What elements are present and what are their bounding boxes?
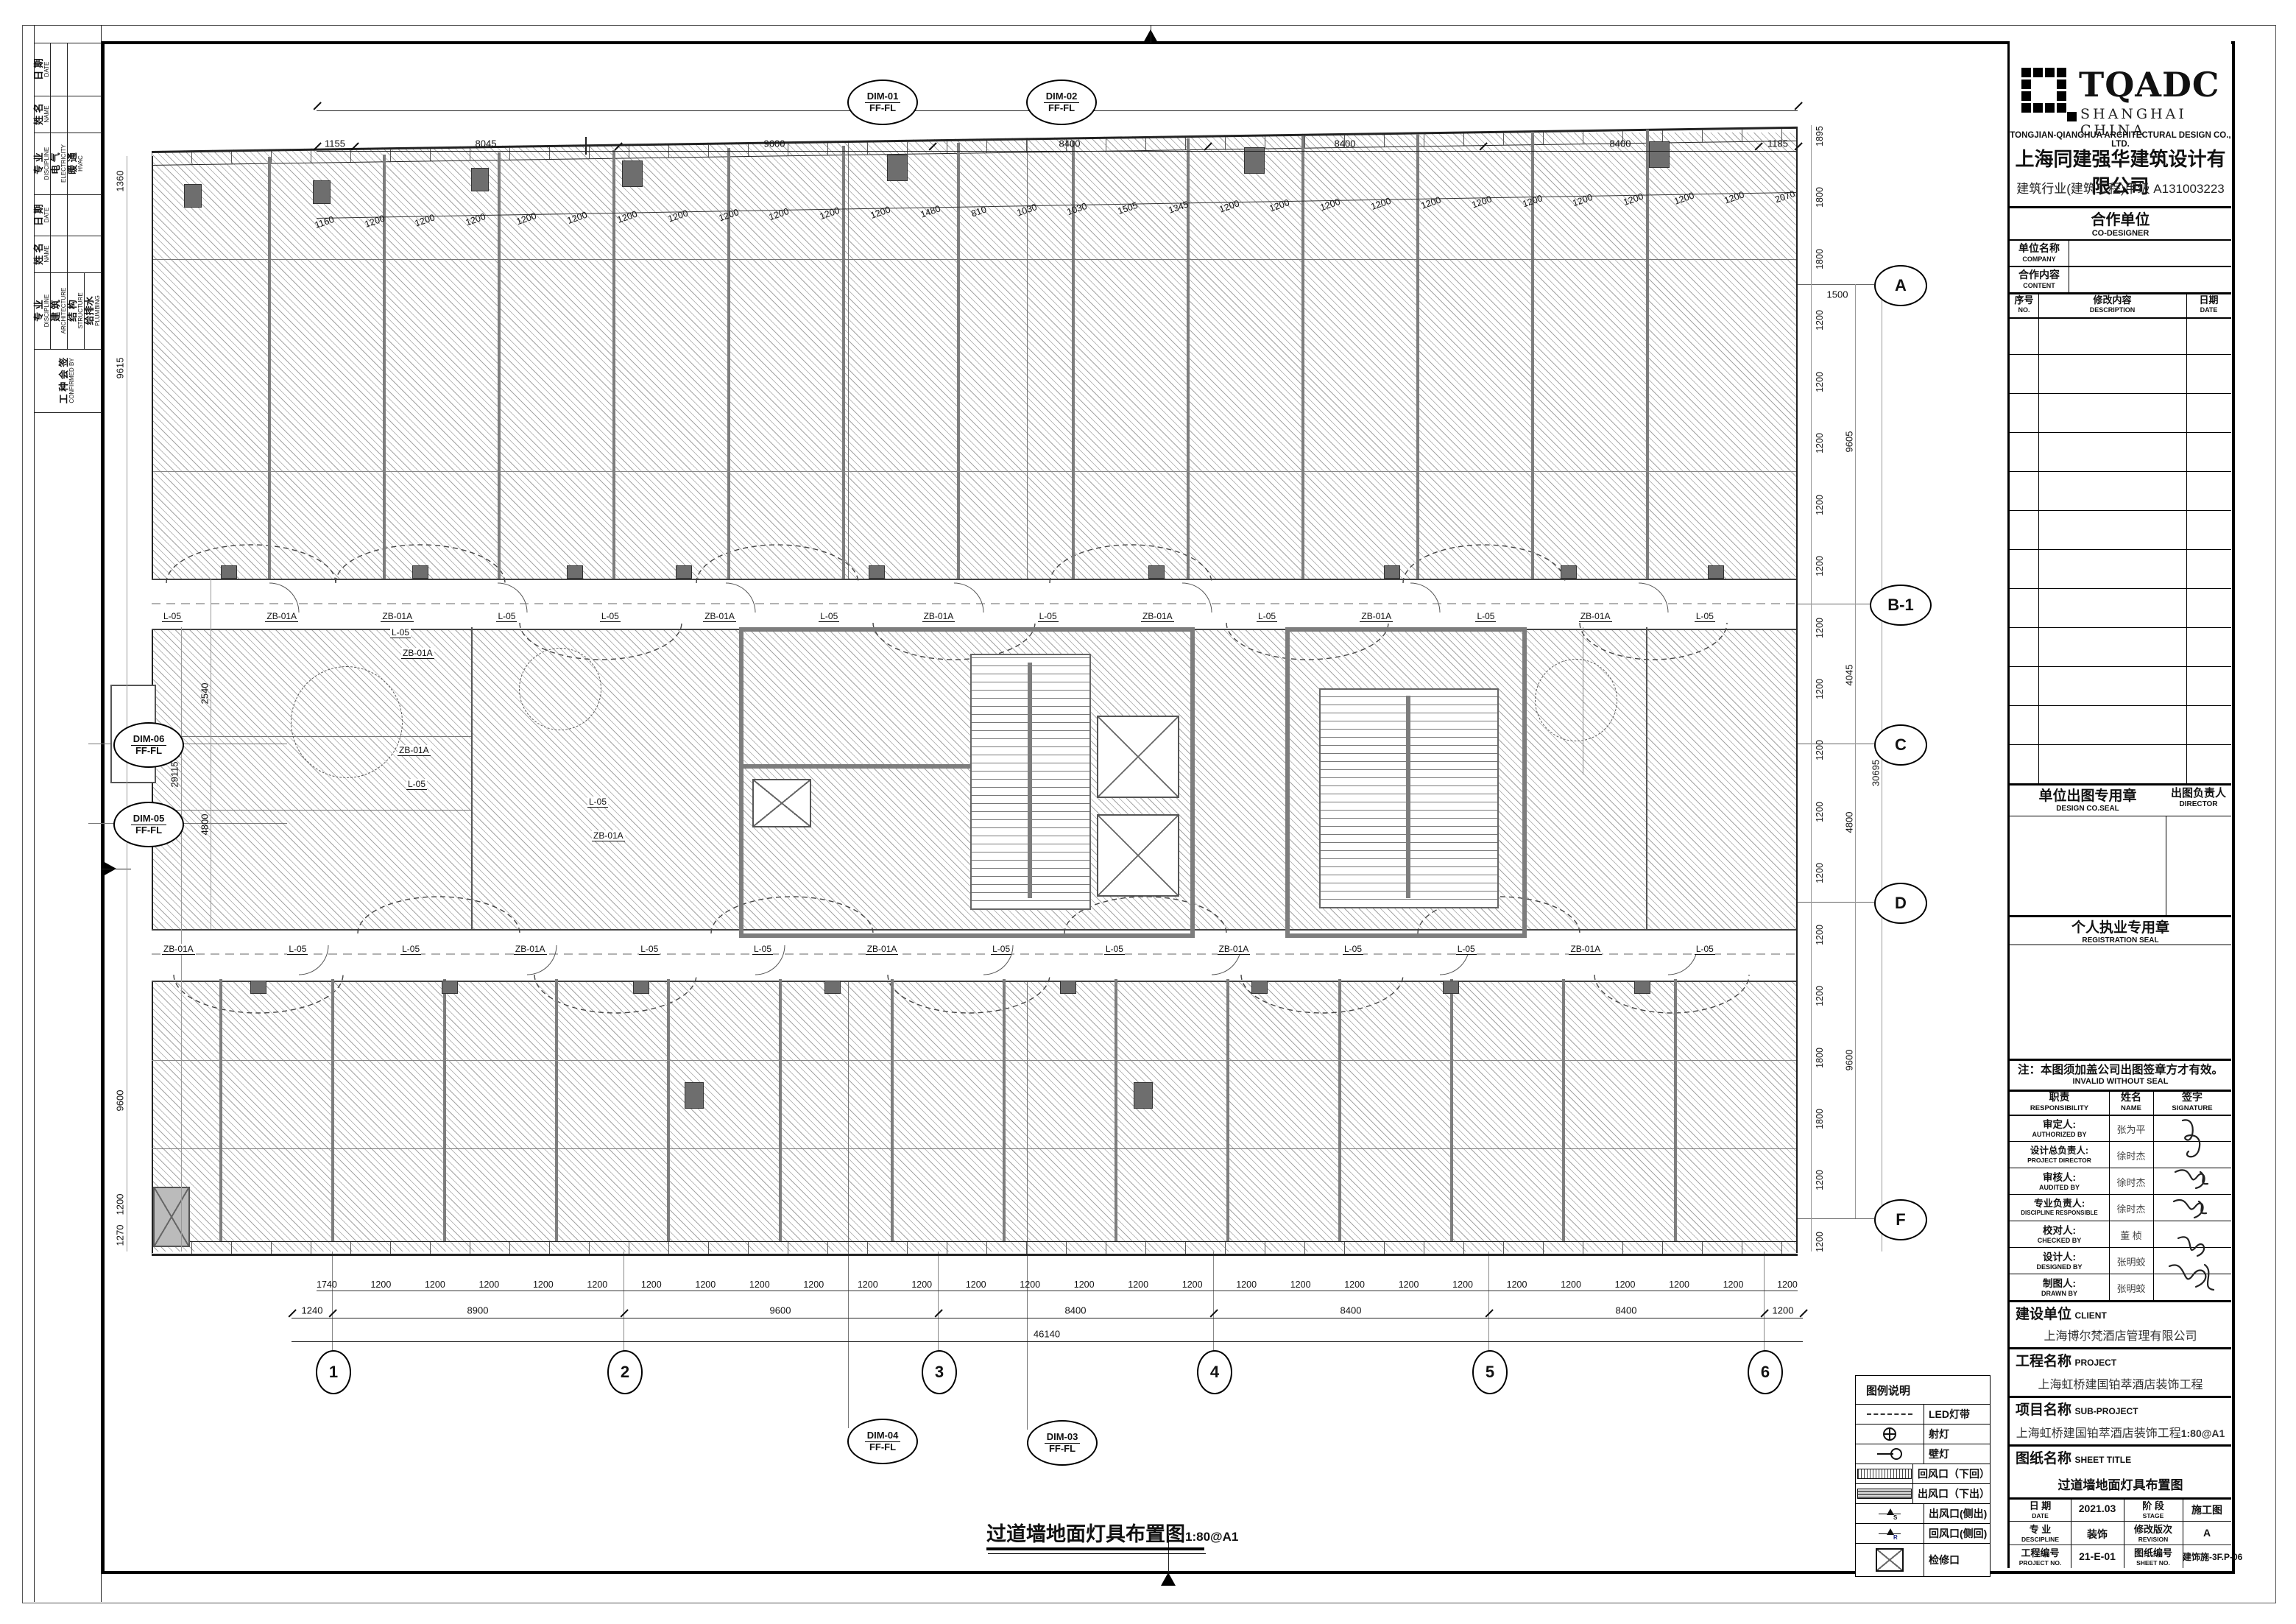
fixture-label: ZB-01A — [398, 745, 431, 756]
fixture-label: L-05 — [1475, 611, 1496, 622]
dim-right-overall: 30695 — [1871, 760, 1882, 786]
signatures — [2153, 1115, 2231, 1300]
bottom-room-band — [152, 979, 1796, 1251]
strip-hvac: 暖 通HVAC — [68, 152, 84, 174]
subproject-overlap: 1:80@A1 — [2181, 1427, 2225, 1439]
dim-segment: 1155 — [325, 138, 345, 149]
legend-title: 图例说明 — [1856, 1383, 1990, 1398]
legend-label: 出风口（下出） — [1913, 1486, 1990, 1501]
fixture-label: L-05 — [991, 944, 1011, 955]
spotlight-icon — [1883, 1427, 1896, 1441]
shaft — [153, 1187, 190, 1247]
grid-bubble-F: F — [1874, 1199, 1927, 1240]
footer-projno-cn: 工程编号 — [2010, 1545, 2071, 1559]
logo-section: TQADC SHANGHAI CHINA TONGJIAN-QIANGHUA A… — [2010, 41, 2231, 208]
registration-seal-cn: 个人执业专用章 — [2010, 917, 2231, 936]
legend-label: 壁灯 — [1924, 1447, 1990, 1461]
dim-left: 29115 — [169, 761, 180, 787]
upper-corridor-labels: L-05ZB-01AZB-01AL-05L-05ZB-01AL-05ZB-01A… — [162, 611, 1715, 622]
grid-bubble-6: 6 — [1748, 1350, 1783, 1394]
strip-plumbing: 给排水PLUMBING — [85, 295, 101, 326]
grid-bubble-C: C — [1874, 724, 1927, 766]
callout-dim-03: DIM-03FF-FL — [1027, 1420, 1098, 1466]
project-value: 上海虹桥建国铂萃酒店装饰工程 — [2010, 1374, 2231, 1392]
project-label-en: PROJECT — [2074, 1358, 2116, 1368]
footer-rev-cn: 修改版次 — [2124, 1522, 2183, 1536]
rev-desc-en: DESCRIPTION — [2038, 306, 2186, 314]
content-label-cn: 合作内容 — [2010, 267, 2069, 282]
strip-date-1: 日 期DATE — [34, 58, 50, 80]
resp-sig-header-cn: 签字 — [2153, 1090, 2231, 1104]
design-seal-en: DESIGN CO.SEAL — [2010, 805, 2166, 813]
dim-left: 2540 — [199, 683, 211, 705]
supply-grille-down-icon — [1857, 1489, 1912, 1499]
footer-stage-val: 施工图 — [2183, 1503, 2231, 1517]
dim-left: 1270 — [115, 1225, 126, 1246]
elevator-shaft — [1097, 814, 1179, 897]
subproject-label-cn: 项目名称 — [2016, 1402, 2071, 1418]
subproject-label-en: SUB-PROJECT — [2074, 1406, 2138, 1416]
fixture-label: L-05 — [1257, 611, 1277, 622]
responsibility-rows: 审定人: AUTHORIZED BY 张为平 设计总负责人: PROJECT D… — [2010, 1115, 2231, 1302]
callout-dim-06: DIM-06FF-FL — [113, 722, 184, 768]
resp-sig-header-en: SIGNATURE — [2153, 1104, 2231, 1112]
fixture-label: ZB-01A — [703, 611, 736, 622]
dim-right-ticks: 1895180018001200120012001200120012001200… — [1812, 131, 1827, 1247]
footer-rev-val: A — [2183, 1527, 2231, 1539]
fixture-label: L-05 — [819, 611, 839, 622]
title-block: TQADC SHANGHAI CHINA TONGJIAN-QIANGHUA A… — [2007, 41, 2231, 1568]
grid-bubble-2: 2 — [607, 1350, 643, 1394]
footer-stage-cn: 阶 段 — [2124, 1498, 2183, 1512]
drawing-title: 过道墙地面灯具布置图1:80@A1 — [986, 1518, 1222, 1547]
resp-role-header-en: RESPONSIBILITY — [2010, 1104, 2109, 1112]
legend-label: 回风口（下回） — [1913, 1466, 1990, 1481]
fixture-label: L-05 — [1343, 944, 1363, 955]
fixture-label: ZB-01A — [514, 944, 547, 955]
resp-name-header-cn: 姓名 — [2109, 1090, 2153, 1104]
dim-segment: 8400 — [1616, 1305, 1637, 1316]
dim-segment: 8045 — [476, 138, 497, 149]
fixture-label: ZB-01A — [922, 611, 956, 622]
dim-segment: 9600 — [770, 1305, 791, 1316]
content-label-en: CONTENT — [2010, 282, 2069, 289]
dim-left: 4800 — [199, 814, 211, 836]
center-mark-bottom-icon — [1161, 1572, 1176, 1586]
callout-dim-01: DIM-01FF-FL — [847, 80, 918, 125]
callout-dim-04: DIM-04FF-FL — [847, 1419, 918, 1464]
fixture-label: L-05 — [406, 779, 427, 790]
dim-segment: 8400 — [1065, 1305, 1087, 1316]
fixture-label: ZB-01A — [265, 611, 298, 622]
strip-name-2: 姓 名NAME — [34, 243, 50, 265]
shaft — [752, 779, 811, 827]
fixture-label: ZB-01A — [401, 648, 434, 659]
fixture-label: ZB-01A — [1141, 611, 1174, 622]
dim-segment: 1240 — [302, 1305, 323, 1316]
legend-label: 检修口 — [1924, 1553, 1990, 1567]
resp-role-header-cn: 职责 — [2010, 1090, 2109, 1104]
legend: 图例说明 LED灯带 射灯 壁灯 回风口（下回） 出风口（下出） — [1855, 1375, 1991, 1577]
dim-segment: 8400 — [1059, 138, 1081, 149]
fixture-label: L-05 — [1695, 611, 1715, 622]
resp-name: 张为平 — [2109, 1122, 2153, 1136]
tqadc-logo-icon — [2021, 68, 2067, 113]
fixture-label: L-05 — [600, 611, 621, 622]
led-strip-icon — [1867, 1413, 1912, 1415]
client-label-en: CLIENT — [2074, 1310, 2106, 1321]
project-label-cn: 工程名称 — [2016, 1354, 2071, 1369]
sheettitle-value: 过道墙地面灯具布置图 — [2010, 1475, 2231, 1493]
dim-right: 4800 — [1844, 812, 1855, 833]
legend-label: 射灯 — [1924, 1427, 1990, 1441]
dim-right: 9605 — [1844, 431, 1855, 453]
logo-acronym: TQADC — [2079, 65, 2220, 105]
footer-sheetno-val: 建饰施-3F.P-06 — [2183, 1550, 2231, 1563]
rev-desc-cn: 修改内容 — [2038, 292, 2186, 306]
access-panel-icon — [1876, 1548, 1904, 1572]
co-designer-en: CO-DESIGNER — [2010, 229, 2231, 238]
dim-segment: 8400 — [1610, 138, 1631, 149]
fixture-label: ZB-01A — [1360, 611, 1393, 622]
callout-dim-02: DIM-02FF-FL — [1026, 80, 1097, 125]
strip-name-1: 姓 名NAME — [34, 103, 50, 125]
dim-left: 1200 — [115, 1194, 126, 1215]
grid-bubble-1: 1 — [316, 1350, 351, 1394]
design-seal-area — [2010, 816, 2231, 917]
strip-discipline-2: 专 业DISCIPLINE — [34, 294, 50, 327]
dim-left: 9615 — [115, 358, 126, 379]
note-en: INVALID WITHOUT SEAL — [2010, 1077, 2231, 1086]
drawing-sheet: 日 期DATE 姓 名NAME 专 业DISCIPLINE 电 气ELECTRI… — [0, 0, 2296, 1624]
fixture-label: L-05 — [496, 611, 517, 622]
fixture-label: L-05 — [639, 944, 660, 955]
footer-sheetno-cn: 图纸编号 — [2124, 1545, 2183, 1559]
strip-electricity: 电 气ELECTRICITY — [51, 144, 67, 183]
fixture-label: L-05 — [390, 627, 411, 638]
sheettitle-label-en: SHEET TITLE — [2074, 1455, 2131, 1465]
grid-bubble-B1: B-1 — [1870, 585, 1932, 626]
footer-disc-cn: 专 业 — [2010, 1522, 2071, 1536]
grid-bubble-4: 4 — [1197, 1350, 1232, 1394]
strip-title: 工 种 会 签CONFIRMED BY — [59, 358, 75, 404]
director-en: DIRECTOR — [2166, 800, 2231, 808]
rev-no-en: NO. — [2010, 306, 2038, 314]
grid-bubble-D: D — [1874, 883, 1927, 924]
dim-left: 9600 — [115, 1090, 126, 1112]
fixture-label: ZB-01A — [162, 944, 195, 955]
design-seal-cn: 单位出图专用章 — [2010, 785, 2166, 805]
registration-seal-en: REGISTRATION SEAL — [2010, 936, 2231, 945]
fixture-label: L-05 — [1456, 944, 1477, 955]
dim-right-small: 1500 — [1827, 289, 1848, 300]
company-label-cn: 单位名称 — [2010, 241, 2069, 255]
subproject-value: 上海虹桥建国铂萃酒店装饰工程 — [2016, 1427, 2181, 1440]
footer-date-val: 2021.03 — [2071, 1503, 2124, 1514]
fixture-label: L-05 — [1695, 944, 1715, 955]
footer-grid: 日 期 DATE 2021.03 阶 段 STAGE 施工图 专 业 DESCI… — [2010, 1497, 2231, 1568]
footer-disc-val: 装饰 — [2071, 1527, 2124, 1542]
dim-bottom-detail: 1740120012001200120012001200120012001200… — [317, 1279, 1798, 1291]
grid-bubble-A: A — [1874, 265, 1927, 306]
client-value: 上海博尔梵酒店管理有限公司 — [2010, 1326, 2231, 1344]
return-grille-side-icon: R — [1879, 1533, 1901, 1534]
strip-date-2: 日 期DATE — [34, 204, 50, 226]
lower-corridor-labels: ZB-01AL-05L-05ZB-01AL-05L-05ZB-01AL-05L-… — [162, 944, 1715, 955]
sheettitle-label-cn: 图纸名称 — [2016, 1451, 2071, 1466]
legend-label: 回风口(侧回) — [1924, 1526, 1990, 1541]
strip-architecture: 建 筑ARCHITECTURE — [51, 288, 67, 334]
dim-segment: 8400 — [1335, 138, 1356, 149]
dim-bottom-overall: 46140 — [1034, 1329, 1060, 1340]
company-label-en: COMPANY — [2010, 255, 2069, 263]
co-designer-cn: 合作单位 — [2010, 208, 2231, 229]
legend-label: 出风口(侧出) — [1924, 1506, 1990, 1521]
grid-bubble-5: 5 — [1472, 1350, 1508, 1394]
rev-date-en: DATE — [2186, 306, 2231, 314]
rev-date-cn: 日期 — [2186, 292, 2231, 306]
fixture-label: L-05 — [1104, 944, 1125, 955]
registration-seal-area — [2010, 945, 2231, 1061]
fixture-label: L-05 — [587, 797, 608, 808]
fixture-label: ZB-01A — [1218, 944, 1251, 955]
dim-segment: 8900 — [467, 1305, 489, 1316]
strip-structure: 结 构STRUCTURE — [68, 292, 84, 328]
dim-left: 1360 — [115, 171, 126, 192]
callout-dim-05: DIM-05FF-FL — [113, 802, 184, 847]
dim-segment: 1200 — [1773, 1305, 1794, 1316]
legend-label: LED灯带 — [1924, 1407, 1990, 1422]
dim-segment: 9600 — [764, 138, 785, 149]
dim-right: 4045 — [1844, 665, 1855, 686]
fixture-label: L-05 — [1038, 611, 1059, 622]
fixture-label: ZB-01A — [1569, 944, 1602, 955]
note-cn: 注：本图须加盖公司出图签章方才有效。 — [2010, 1061, 2231, 1077]
supply-grille-side-icon: S — [1879, 1514, 1901, 1514]
elevator-shaft — [1097, 716, 1179, 798]
footer-projno-val: 21-E-01 — [2071, 1550, 2124, 1562]
fixture-label: L-05 — [752, 944, 773, 955]
logo-qualification: 建筑行业(建筑工程)甲级 A131003223 — [2010, 178, 2231, 197]
fixture-label: L-05 — [400, 944, 421, 955]
resp-name-header-en: NAME — [2109, 1104, 2153, 1112]
revision-rows — [2010, 317, 2231, 785]
bottom-facade — [152, 1241, 1798, 1256]
fixture-label: L-05 — [287, 944, 308, 955]
footer-date-cn: 日 期 — [2010, 1498, 2071, 1512]
director-cn: 出图负责人 — [2166, 785, 2231, 800]
resp-role: 审定人: — [2010, 1116, 2109, 1131]
return-grille-down-icon — [1857, 1469, 1912, 1479]
strip-discipline-1: 专 业DISCIPLINE — [34, 147, 50, 180]
fixture-label: L-05 — [162, 611, 183, 622]
rev-no-cn: 序号 — [2010, 292, 2038, 306]
fixture-label: ZB-01A — [866, 944, 899, 955]
fixture-label: ZB-01A — [381, 611, 414, 622]
dim-right: 9600 — [1844, 1050, 1855, 1071]
grid-bubble-3: 3 — [922, 1350, 957, 1394]
dim-segment: 1185 — [1767, 138, 1788, 149]
client-label-cn: 建设单位 — [2016, 1307, 2071, 1322]
dim-segment: 8400 — [1340, 1305, 1362, 1316]
fixture-label: ZB-01A — [1579, 611, 1612, 622]
fixture-label: ZB-01A — [592, 830, 625, 841]
